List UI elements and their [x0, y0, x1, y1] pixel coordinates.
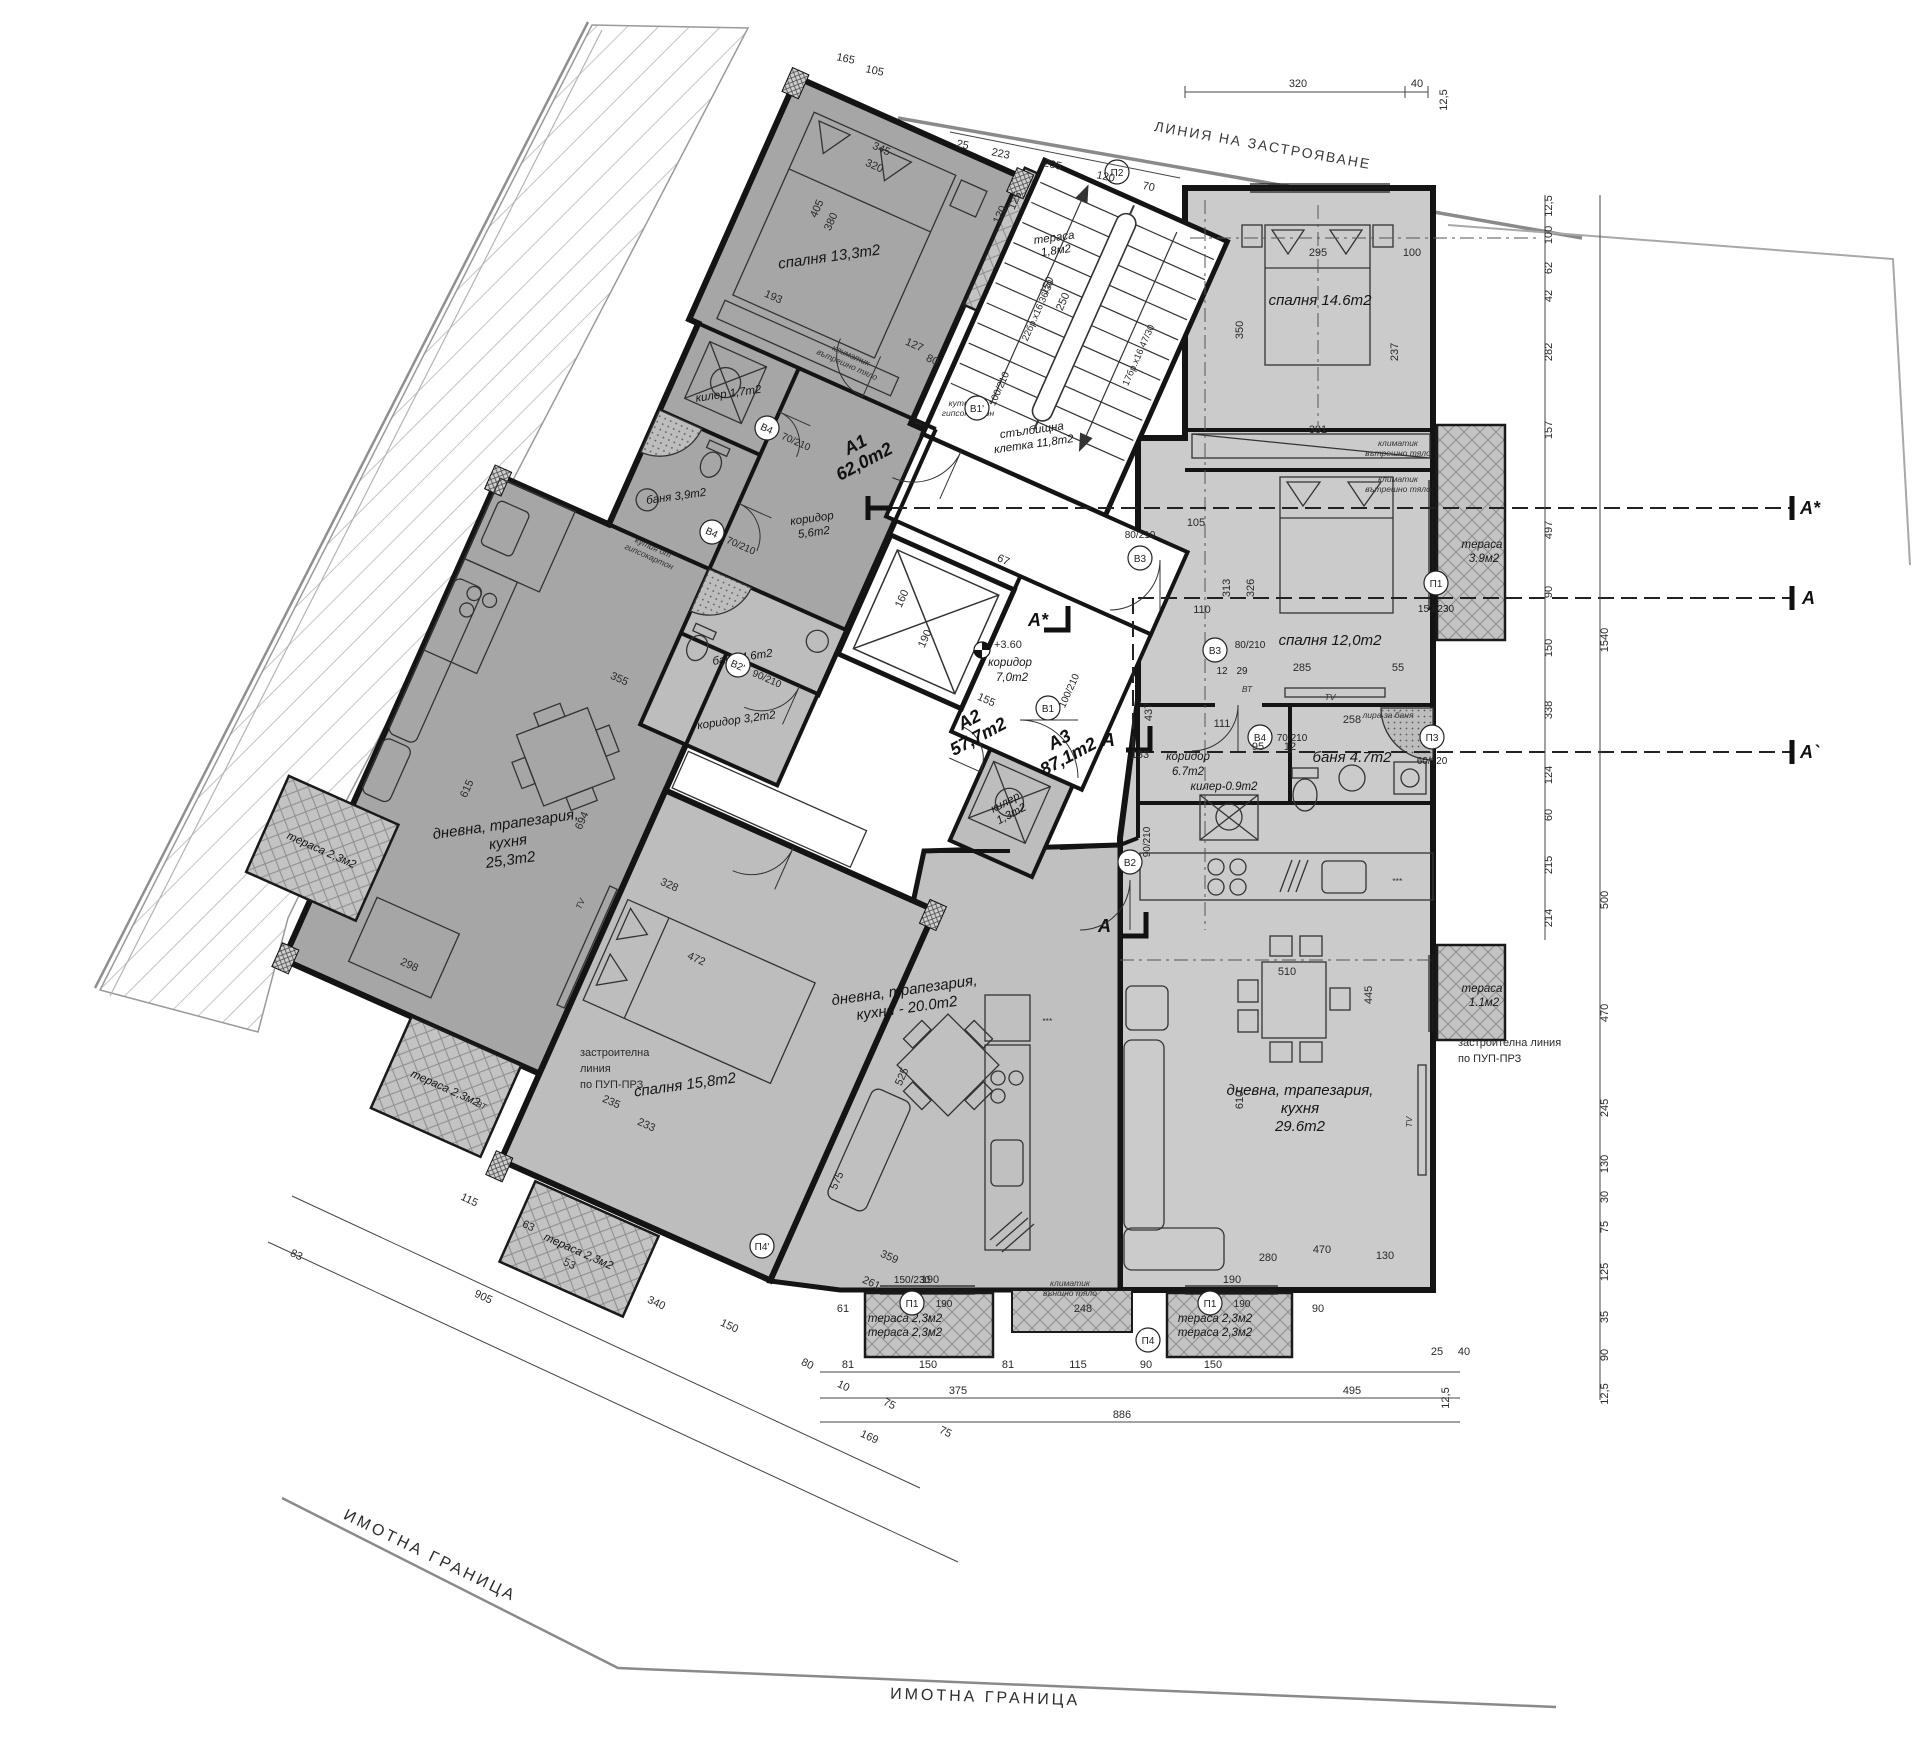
- svg-text:75: 75: [1599, 1221, 1611, 1233]
- floor-plan-drawing: ЛИНИЯ НА ЗАСТРОЯВАНЕ ИМОТНА ГРАНИЦА ИМОТ…: [0, 0, 1920, 1759]
- svg-text:190: 190: [921, 1274, 939, 1286]
- svg-text:1.1м2: 1.1м2: [1469, 997, 1500, 1009]
- svg-text:3.9м2: 3.9м2: [1469, 553, 1500, 565]
- room-label-a3-bath: баня 4.7m2: [1313, 749, 1393, 766]
- svg-text:258: 258: [1343, 714, 1361, 726]
- svg-text:245: 245: [1599, 1099, 1611, 1117]
- svg-text:90: 90: [1140, 1359, 1152, 1371]
- svg-text:510: 510: [1278, 966, 1296, 978]
- svg-text:90: 90: [1543, 586, 1555, 598]
- svg-text:40: 40: [1458, 1346, 1470, 1358]
- svg-text:П1: П1: [1430, 579, 1443, 590]
- svg-text:П3: П3: [1426, 733, 1439, 744]
- svg-text:лира за баня: лира за баня: [1361, 710, 1413, 720]
- floor-plan-page: ЛИНИЯ НА ЗАСТРОЯВАНЕ ИМОТНА ГРАНИЦА ИМОТ…: [0, 0, 1920, 1759]
- room-label-a3-hall: коридор: [1166, 751, 1210, 763]
- svg-text:кухня: кухня: [1281, 1100, 1319, 1117]
- svg-text:110: 110: [1193, 604, 1211, 616]
- dims-right-outer: 1540 500 470 245 130 30 75 125 35 90 12,…: [1599, 195, 1611, 1405]
- svg-text:В2: В2: [1124, 858, 1137, 869]
- svg-text:130: 130: [1376, 1250, 1394, 1262]
- svg-text:280: 280: [1259, 1252, 1277, 1264]
- svg-text:470: 470: [1313, 1244, 1331, 1256]
- svg-text:62: 62: [1543, 262, 1555, 274]
- svg-text:124: 124: [1543, 766, 1555, 784]
- svg-text:35: 35: [1599, 1311, 1611, 1323]
- svg-text:80/210: 80/210: [1125, 530, 1156, 541]
- building-line-label: ЛИНИЯ НА ЗАСТРОЯВАНЕ: [1153, 118, 1372, 172]
- svg-text:П1: П1: [1204, 1299, 1217, 1310]
- svg-text:по ПУП-ПРЗ: по ПУП-ПРЗ: [1458, 1053, 1522, 1065]
- svg-text:83: 83: [288, 1247, 304, 1263]
- svg-text:150: 150: [1204, 1359, 1222, 1371]
- svg-text:350: 350: [1234, 321, 1246, 339]
- svg-text:150/230: 150/230: [1418, 604, 1455, 615]
- svg-text:7,0m2: 7,0m2: [996, 672, 1029, 684]
- svg-text:12,5: 12,5: [1599, 1383, 1611, 1404]
- svg-text:75: 75: [937, 1424, 953, 1440]
- svg-text:214: 214: [1543, 909, 1555, 927]
- svg-text:TV: TV: [1325, 692, 1337, 702]
- svg-text:61: 61: [837, 1303, 849, 1315]
- svg-text:TV: TV: [1404, 1115, 1414, 1127]
- svg-text:81: 81: [1002, 1359, 1014, 1371]
- svg-text:по ПУП-ПРЗ: по ПУП-ПРЗ: [580, 1079, 644, 1091]
- property-boundary-bottom: [282, 1498, 1556, 1707]
- svg-text:В3: В3: [1134, 554, 1147, 565]
- svg-text:81: 81: [842, 1359, 854, 1371]
- svg-text:500: 500: [1599, 891, 1611, 909]
- svg-text:150: 150: [1543, 639, 1555, 657]
- section-label-a-right: А: [1801, 588, 1815, 608]
- svg-text:климатик: климатик: [1378, 474, 1419, 484]
- svg-text:29.6m2: 29.6m2: [1274, 1118, 1326, 1135]
- room-label-a3-living: дневна, трапезария,: [1227, 1082, 1374, 1099]
- svg-text:133: 133: [1131, 749, 1149, 761]
- dev-line-note-right: застроителна линия по ПУП-ПРЗ: [1458, 1037, 1561, 1065]
- room-label-terrace23-br: тераса 2,3м2: [1178, 1313, 1253, 1325]
- svg-text:тераса 2,3м2: тераса 2,3м2: [868, 1327, 943, 1339]
- svg-text:застроителна линия: застроителна линия: [1458, 1037, 1561, 1049]
- svg-text:326: 326: [1245, 579, 1257, 597]
- svg-text:90/210: 90/210: [1142, 826, 1153, 857]
- svg-text:100: 100: [1543, 226, 1555, 244]
- property-boundary-label-bottom: ИМОТНА ГРАНИЦА: [890, 1686, 1081, 1710]
- dims-right-inner: 12,5 100 62 42 282 157 497 90 150 338 12…: [1543, 195, 1555, 940]
- svg-text:375: 375: [949, 1385, 967, 1397]
- svg-text:В1': В1': [970, 404, 984, 415]
- svg-text:150: 150: [919, 1359, 937, 1371]
- svg-text:115: 115: [459, 1191, 480, 1209]
- room-label-terrace39: тераса: [1462, 539, 1503, 551]
- svg-text:12: 12: [1284, 741, 1296, 753]
- svg-text:В1: В1: [1042, 704, 1055, 715]
- svg-text:223: 223: [990, 146, 1010, 162]
- svg-text:130: 130: [1599, 1155, 1611, 1173]
- svg-text:111: 111: [1214, 718, 1231, 730]
- svg-text:445: 445: [1363, 986, 1375, 1004]
- svg-text:тераса 2,3м2: тераса 2,3м2: [1178, 1327, 1253, 1339]
- svg-text:40: 40: [1411, 78, 1423, 90]
- svg-text:497: 497: [1543, 521, 1555, 539]
- dims-top: 320 40 12,5: [1185, 78, 1450, 111]
- svg-text:42: 42: [1543, 290, 1555, 302]
- a3-fridge-icon: ***: [1392, 876, 1403, 886]
- svg-text:климатик: климатик: [1050, 1278, 1091, 1288]
- room-label-terrace23-bl: тераса 2,3м2: [868, 1313, 943, 1325]
- svg-text:237: 237: [1389, 343, 1401, 361]
- svg-text:външно тяло: външно тяло: [1043, 1288, 1097, 1298]
- section-label-a-star-plan: А*: [1027, 610, 1049, 630]
- svg-text:285: 285: [1293, 662, 1311, 674]
- room-label-a3-closet: килер-0.9m2: [1191, 781, 1258, 793]
- svg-text:12: 12: [1216, 666, 1228, 677]
- svg-text:295: 295: [1309, 247, 1327, 259]
- svg-text:338: 338: [1543, 701, 1555, 719]
- svg-text:застроителна: застроителна: [580, 1047, 650, 1059]
- svg-text:470: 470: [1599, 1004, 1611, 1022]
- svg-text:10: 10: [835, 1378, 851, 1394]
- room-label-terrace11: тераса: [1462, 983, 1503, 995]
- property-boundary-right: [1448, 225, 1910, 565]
- svg-text:190: 190: [1223, 1274, 1241, 1286]
- level-value: +3.60: [994, 639, 1022, 651]
- svg-text:60/120: 60/120: [1417, 756, 1448, 767]
- svg-text:495: 495: [1343, 1385, 1361, 1397]
- svg-text:150: 150: [718, 1317, 740, 1336]
- svg-text:П4': П4': [755, 1242, 770, 1253]
- svg-text:610: 610: [1234, 1091, 1246, 1109]
- svg-text:29: 29: [1236, 666, 1248, 677]
- room-label-a3-bedroom2: спалня 12,0m2: [1279, 632, 1383, 649]
- svg-text:12,5: 12,5: [1440, 1387, 1452, 1408]
- svg-text:В3: В3: [1209, 646, 1222, 657]
- section-label-a-plan: А: [1101, 730, 1115, 750]
- svg-text:340: 340: [645, 1294, 667, 1313]
- svg-text:437: 437: [1143, 703, 1155, 721]
- svg-text:12,5: 12,5: [1438, 89, 1450, 110]
- svg-text:ВТ: ВТ: [1242, 684, 1253, 694]
- svg-text:215: 215: [1543, 856, 1555, 874]
- svg-text:60: 60: [1543, 809, 1555, 821]
- svg-text:115: 115: [1069, 1359, 1087, 1371]
- svg-text:100: 100: [1403, 247, 1421, 259]
- svg-text:1540: 1540: [1599, 628, 1611, 652]
- svg-text:190: 190: [936, 1299, 953, 1310]
- svg-text:П4: П4: [1142, 1336, 1155, 1347]
- svg-text:климатик: климатик: [1378, 438, 1419, 448]
- svg-text:320: 320: [1289, 78, 1307, 90]
- svg-text:80/210: 80/210: [1235, 640, 1266, 651]
- svg-text:12,5: 12,5: [1543, 195, 1555, 216]
- svg-text:6.7m2: 6.7m2: [1172, 766, 1205, 778]
- svg-text:30: 30: [1599, 1191, 1611, 1203]
- svg-text:80: 80: [799, 1356, 815, 1372]
- svg-text:90: 90: [1599, 1349, 1611, 1361]
- svg-text:157: 157: [1543, 421, 1555, 439]
- room-label-a3-bedroom1: спалня 14.6m2: [1269, 292, 1373, 309]
- room-label-corridor7: коридор: [988, 657, 1032, 669]
- a2-fridge-icon: ***: [1042, 1016, 1053, 1026]
- svg-text:90: 90: [1312, 1303, 1324, 1315]
- section-label-a-star-right: А*: [1799, 498, 1821, 518]
- svg-text:75: 75: [881, 1396, 897, 1412]
- svg-text:905: 905: [472, 1288, 494, 1307]
- svg-text:95: 95: [1252, 741, 1264, 753]
- svg-text:70: 70: [1141, 180, 1155, 194]
- svg-text:248: 248: [1074, 1303, 1092, 1315]
- svg-text:линия: линия: [580, 1063, 611, 1075]
- svg-text:вътрешно тяло: вътрешно тяло: [1365, 448, 1431, 458]
- svg-text:125: 125: [1599, 1263, 1611, 1281]
- section-label-a-prime-right: А`: [1799, 742, 1820, 762]
- svg-text:169: 169: [858, 1428, 880, 1447]
- svg-text:190: 190: [1234, 1299, 1251, 1310]
- svg-text:П1: П1: [906, 1299, 919, 1310]
- property-boundary-label-left: ИМОТНА ГРАНИЦА: [341, 1507, 519, 1606]
- svg-text:вътрешно тяло: вътрешно тяло: [1365, 484, 1431, 494]
- svg-text:25: 25: [1431, 1346, 1443, 1358]
- svg-text:105: 105: [864, 63, 884, 79]
- svg-text:381: 381: [1309, 424, 1327, 436]
- terrace-2-3-bottom-left: [865, 1293, 993, 1357]
- svg-text:105: 105: [1187, 517, 1205, 529]
- terrace-2-3-bottom-right: [1167, 1293, 1292, 1357]
- svg-text:282: 282: [1543, 343, 1555, 361]
- svg-text:165: 165: [835, 51, 855, 67]
- svg-text:313: 313: [1221, 579, 1233, 597]
- svg-text:55: 55: [1392, 662, 1404, 674]
- svg-text:25: 25: [955, 138, 969, 152]
- svg-text:886: 886: [1113, 1409, 1131, 1421]
